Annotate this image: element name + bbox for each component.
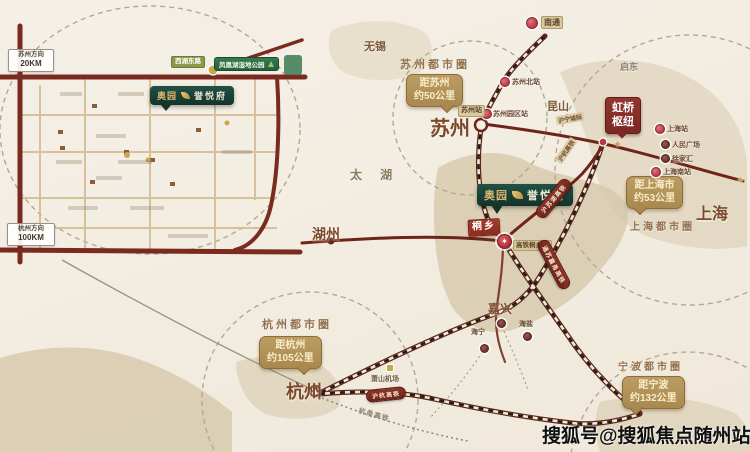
tiny-label-placeholder bbox=[60, 92, 82, 96]
inset-direction-bottom: 杭州方向 100KM bbox=[7, 223, 55, 246]
callout-line1: 距苏州 bbox=[414, 78, 455, 91]
city-qidong: 启东 bbox=[620, 60, 638, 73]
logo-tail bbox=[491, 205, 503, 214]
hub-line1: 虹桥 bbox=[612, 101, 634, 115]
callout-suzhou: 距苏州 约50公里 bbox=[406, 74, 463, 107]
station-dot bbox=[526, 17, 538, 29]
tiny-label-placeholder bbox=[118, 160, 152, 164]
airport-icon bbox=[386, 364, 394, 372]
station-dot bbox=[655, 124, 665, 134]
callout-ningbo: 距宁波 约132公里 bbox=[622, 376, 685, 409]
town-haining: 海宁 bbox=[471, 327, 485, 337]
inset-road-tag: 西湖东路 bbox=[171, 56, 205, 68]
city-huzhou: 湖州 bbox=[312, 224, 340, 244]
station-suzhou: 苏州站 bbox=[458, 105, 485, 117]
station-suzhou-park: 苏州园区站 bbox=[493, 109, 528, 119]
station-shanghai: 上海站 bbox=[667, 124, 688, 134]
station-dot bbox=[661, 140, 670, 149]
sohu-watermark: 搜狐号@搜狐焦点随州站 bbox=[542, 421, 750, 448]
logo-brand: 奥园 bbox=[484, 187, 508, 203]
station-suzhou-north: 苏州北站 bbox=[512, 77, 540, 87]
region-ningbo-circle: 宁波都市圈 bbox=[618, 358, 683, 373]
callout-hangzhou: 距杭州 约105公里 bbox=[259, 336, 322, 369]
station-dot bbox=[651, 167, 661, 177]
logo-brand: 奥园 bbox=[157, 89, 177, 102]
tiny-label-placeholder bbox=[56, 160, 82, 164]
city-kunshan: 昆山 bbox=[547, 98, 569, 114]
tiny-label-placeholder bbox=[96, 134, 126, 138]
town-haiyan: 海盐 bbox=[519, 319, 533, 329]
station-dot bbox=[523, 332, 532, 341]
location-map: 苏州方向 20KM 杭州方向 100KM 西湖东路 凤凰湖湿地公园 奥园 誉悦府… bbox=[0, 0, 750, 452]
callout-line1: 距杭州 bbox=[267, 340, 314, 353]
logo-name: 誉悦府 bbox=[194, 89, 227, 102]
inset-project-logo: 奥园 誉悦府 bbox=[150, 86, 234, 105]
label-xiaoshan-airport: 萧山机场 bbox=[371, 374, 399, 384]
tongxiang-label: 桐乡 bbox=[468, 218, 501, 236]
tiny-label-placeholder bbox=[168, 234, 208, 238]
compass-star-icon: ✦ bbox=[613, 138, 622, 151]
station-dot bbox=[661, 154, 670, 163]
leaf-icon bbox=[512, 191, 523, 199]
tiny-label-placeholder bbox=[222, 150, 252, 154]
region-suzhou-circle: 苏州都市圈 bbox=[400, 56, 470, 72]
logo-tail bbox=[160, 104, 172, 111]
project-location-marker: ✦ bbox=[497, 234, 512, 249]
tree-icon bbox=[268, 61, 274, 67]
city-wuxi: 无锡 bbox=[364, 38, 386, 54]
station-dot bbox=[480, 344, 489, 353]
direction-name: 苏州方向 bbox=[12, 51, 50, 59]
direction-distance: 20KM bbox=[12, 59, 50, 69]
hongqiao-hub-label: 虹桥 枢纽 bbox=[605, 97, 641, 134]
callout-line1: 距宁波 bbox=[630, 380, 677, 393]
city-nantong: 南通 bbox=[541, 16, 563, 29]
tiny-label-placeholder bbox=[68, 206, 98, 210]
station-shanghai-south: 上海南站 bbox=[663, 167, 691, 177]
callout-line1: 距上海市 bbox=[634, 180, 675, 193]
city-hangzhou: 杭州 bbox=[286, 378, 322, 404]
tiny-label-placeholder bbox=[118, 92, 144, 96]
region-hangzhou-circle: 杭州都市圈 bbox=[262, 316, 332, 332]
station-xujiahui: 徐家汇 bbox=[672, 154, 693, 164]
pudong-star-icon: ✦ bbox=[736, 174, 745, 187]
leaf-icon bbox=[181, 92, 190, 99]
direction-name: 杭州方向 bbox=[11, 225, 51, 233]
tiny-label-placeholder bbox=[130, 206, 164, 210]
station-peoples-square: 人民广场 bbox=[672, 140, 700, 150]
city-jiaxing: 嘉兴 bbox=[488, 300, 512, 317]
inset-direction-top: 苏州方向 20KM bbox=[8, 49, 54, 72]
tiny-label-placeholder bbox=[96, 176, 122, 180]
region-shanghai-circle: 上海都市圈 bbox=[630, 218, 695, 233]
callout-shanghai: 距上海市 约53公里 bbox=[626, 176, 683, 209]
lake-taihu: 太 湖 bbox=[350, 166, 399, 183]
station-dot bbox=[497, 319, 506, 328]
station-dot bbox=[500, 77, 510, 87]
direction-distance: 100KM bbox=[11, 233, 51, 243]
city-shanghai: 上海 bbox=[696, 200, 728, 224]
park-name: 凤凰湖湿地公园 bbox=[219, 59, 265, 69]
inset-park-label: 凤凰湖湿地公园 bbox=[214, 57, 279, 71]
